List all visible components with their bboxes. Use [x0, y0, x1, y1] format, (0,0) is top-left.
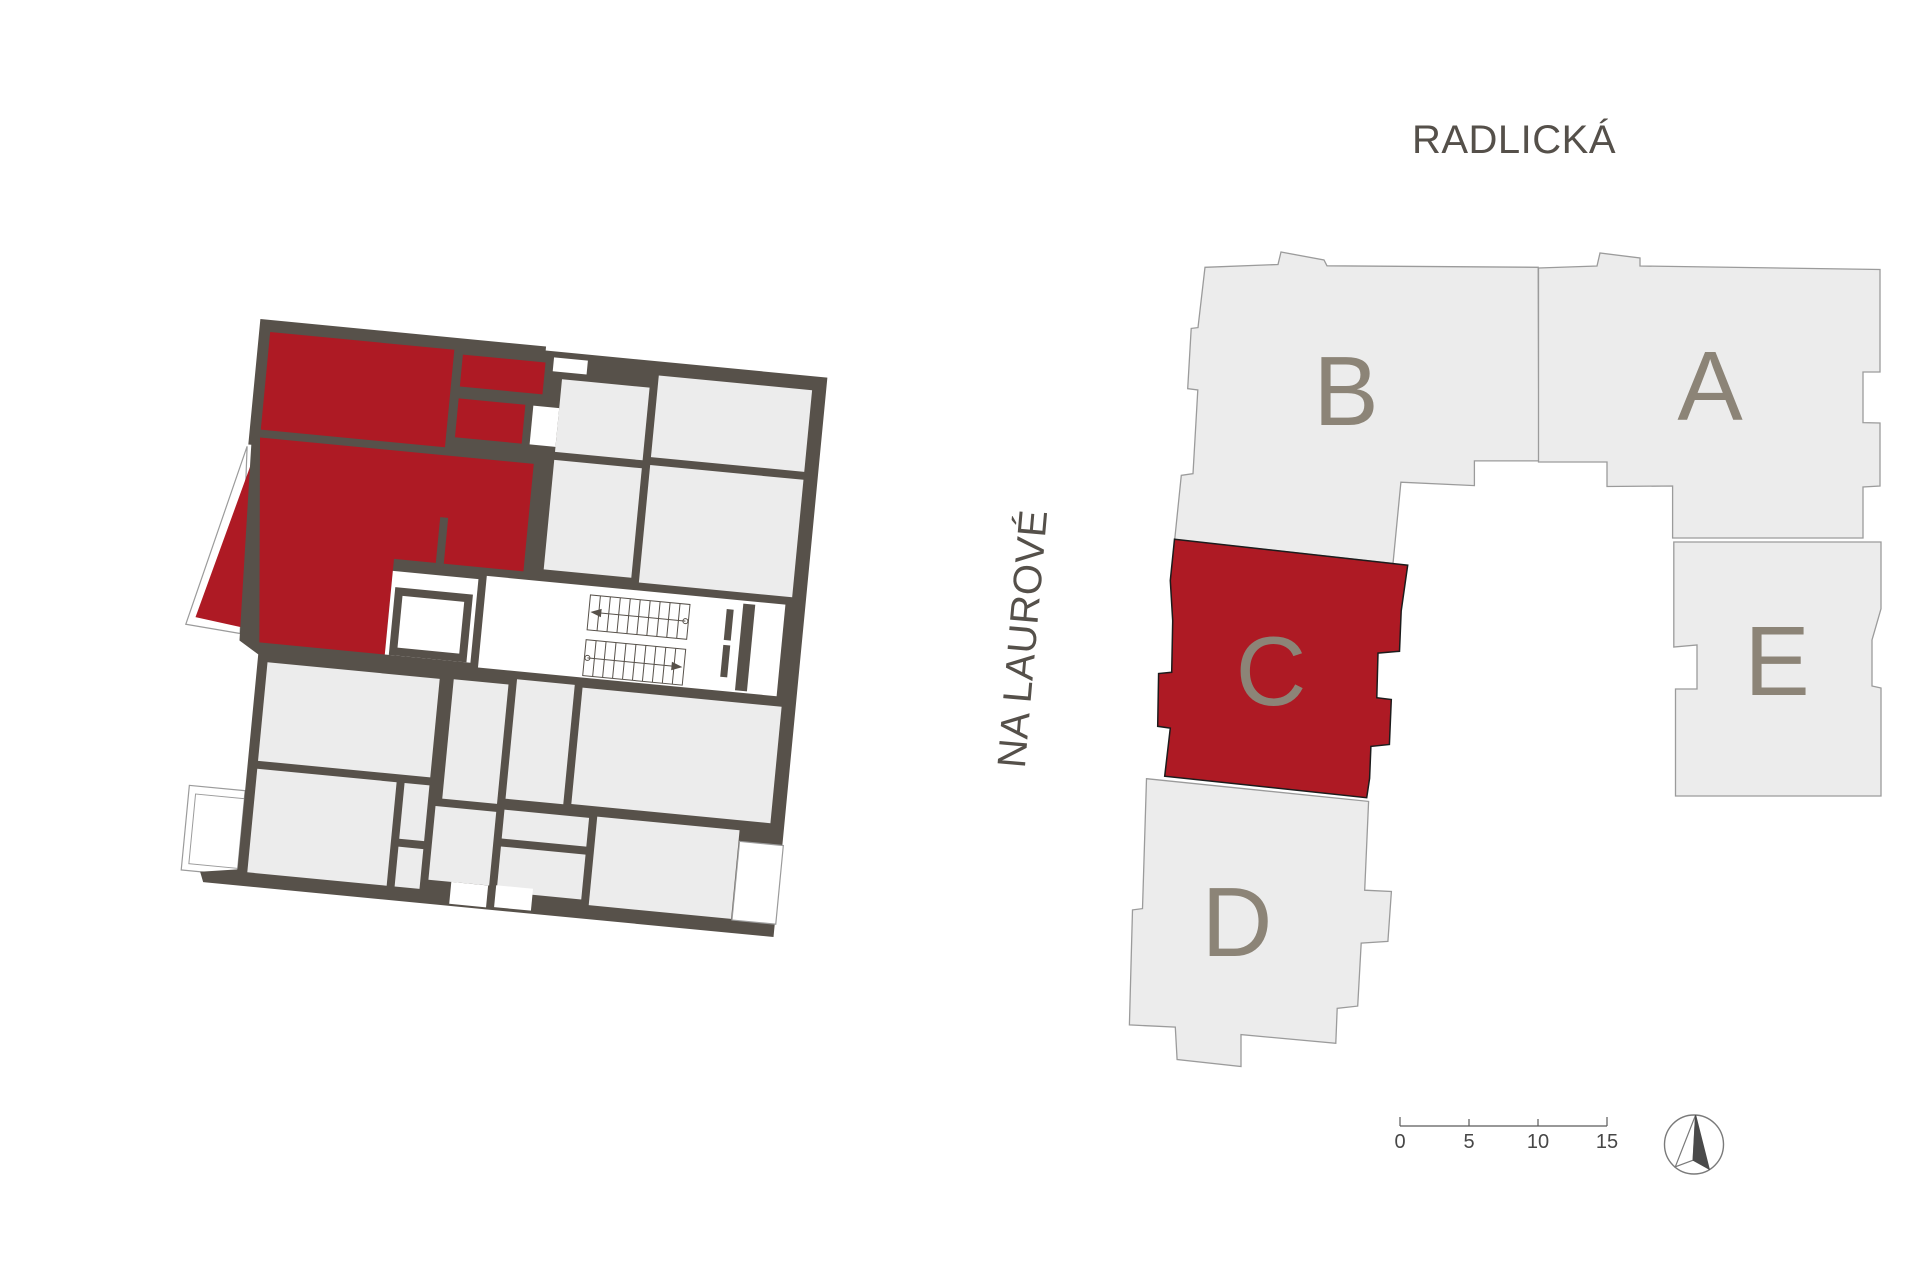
svg-text:15: 15 [1596, 1131, 1618, 1153]
svg-text:5: 5 [1463, 1131, 1474, 1153]
svg-text:B: B [1313, 336, 1378, 446]
svg-text:10: 10 [1527, 1131, 1549, 1153]
svg-text:C: C [1236, 616, 1307, 726]
svg-text:D: D [1202, 867, 1273, 977]
svg-text:0: 0 [1394, 1131, 1405, 1153]
svg-text:RADLICKÁ: RADLICKÁ [1412, 117, 1616, 162]
svg-text:A: A [1677, 331, 1743, 441]
svg-text:E: E [1744, 606, 1809, 716]
